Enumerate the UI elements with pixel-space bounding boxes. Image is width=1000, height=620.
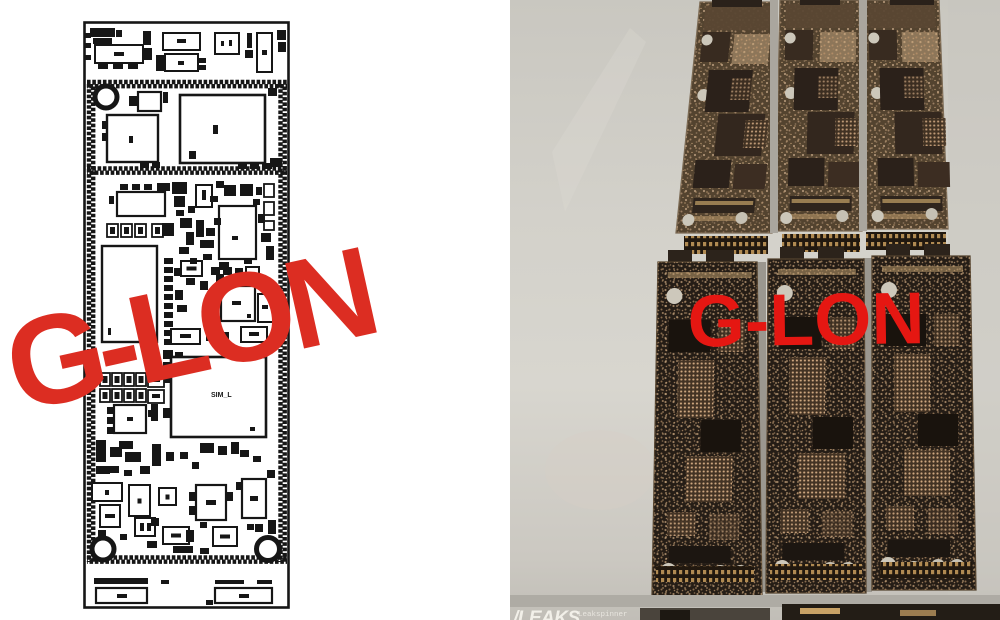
svg-text:/LEAKS: /LEAKS [512, 608, 581, 620]
svg-text:G-LON: G-LON [687, 276, 925, 362]
svg-text:Leakspinner: Leakspinner [578, 611, 628, 619]
